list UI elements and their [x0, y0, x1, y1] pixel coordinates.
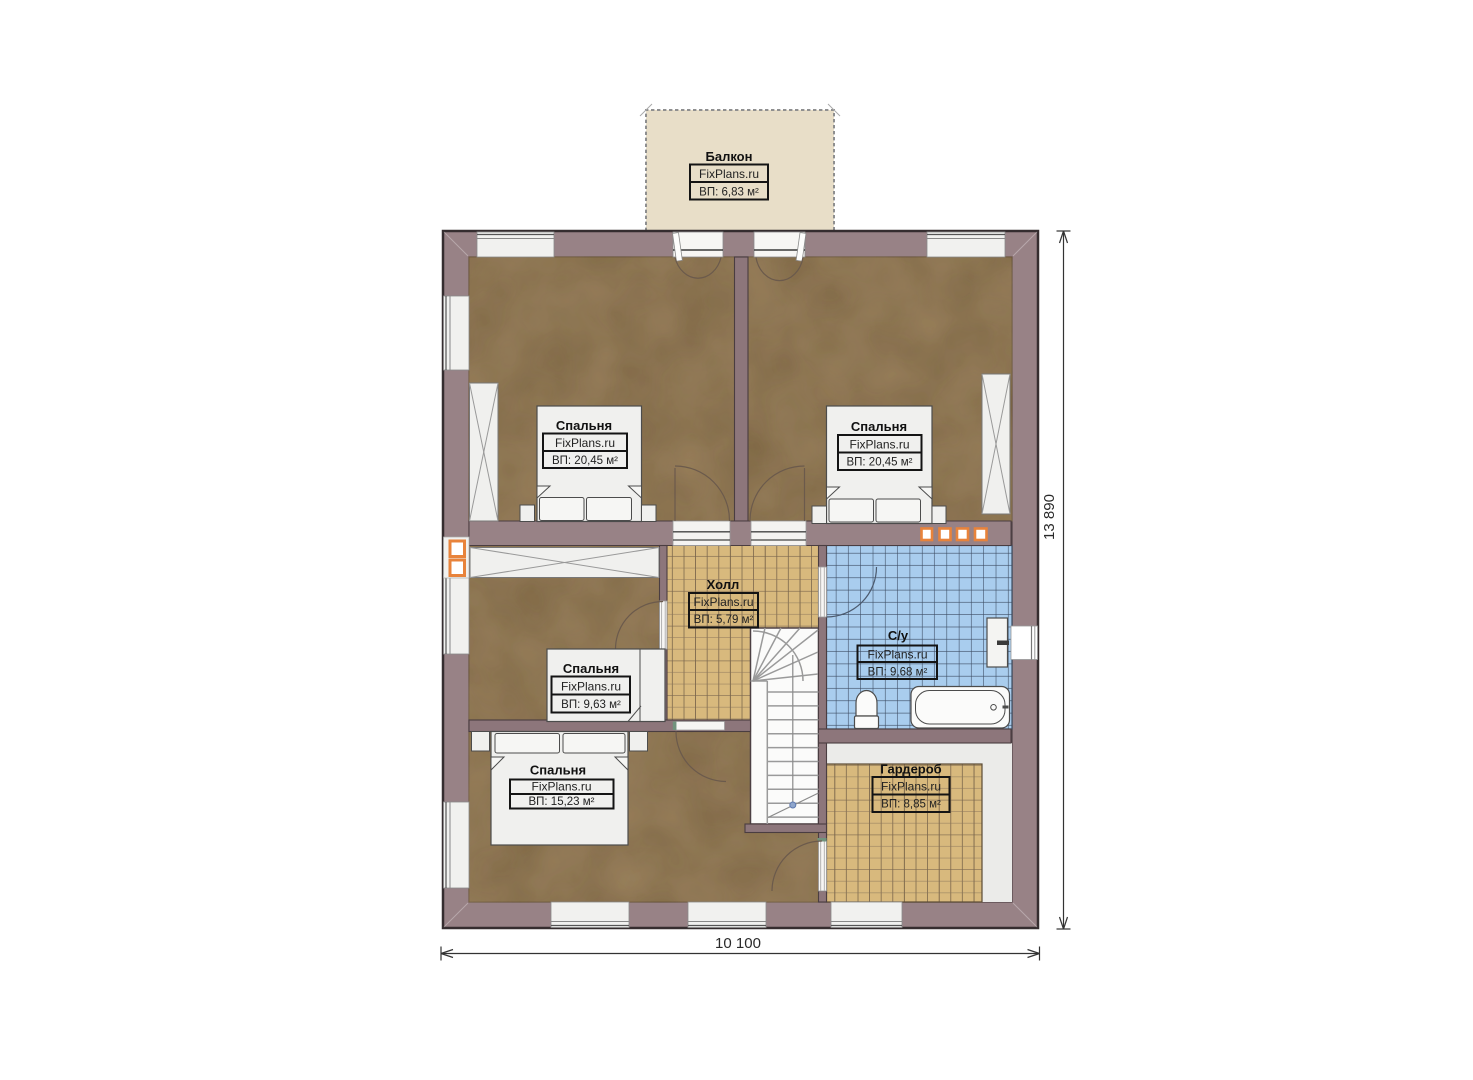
svg-text:FixPlans.ru: FixPlans.ru — [531, 780, 591, 794]
svg-text:Спальня: Спальня — [563, 661, 619, 676]
svg-text:ВП: 15,23 м²: ВП: 15,23 м² — [528, 796, 594, 808]
svg-text:FixPlans.ru: FixPlans.ru — [699, 167, 759, 181]
svg-text:FixPlans.ru: FixPlans.ru — [693, 595, 753, 609]
svg-text:ВП: 6,83 м²: ВП: 6,83 м² — [699, 187, 759, 199]
svg-text:ВП: 9,63 м²: ВП: 9,63 м² — [561, 699, 621, 711]
svg-text:FixPlans.ru: FixPlans.ru — [881, 780, 941, 794]
svg-text:Гардероб: Гардероб — [880, 762, 941, 777]
svg-text:С/у: С/у — [888, 628, 909, 643]
svg-text:ВП: 20,45 м²: ВП: 20,45 м² — [552, 455, 618, 467]
svg-text:Балкон: Балкон — [706, 149, 753, 164]
svg-text:ВП: 8,85 м²: ВП: 8,85 м² — [881, 799, 941, 811]
svg-text:13 890: 13 890 — [1041, 494, 1058, 540]
svg-text:10 100: 10 100 — [715, 935, 761, 952]
svg-text:FixPlans.ru: FixPlans.ru — [867, 648, 927, 662]
svg-text:ВП: 5,79 м²: ВП: 5,79 м² — [694, 614, 754, 626]
svg-text:FixPlans.ru: FixPlans.ru — [555, 436, 615, 450]
svg-text:Спальня: Спальня — [851, 419, 907, 434]
svg-text:FixPlans.ru: FixPlans.ru — [849, 438, 909, 452]
svg-text:Спальня: Спальня — [530, 763, 586, 778]
svg-text:ВП: 20,45 м²: ВП: 20,45 м² — [846, 457, 912, 469]
svg-text:Холл: Холл — [707, 577, 740, 592]
svg-text:ВП: 9,68 м²: ВП: 9,68 м² — [868, 667, 928, 679]
svg-text:Спальня: Спальня — [556, 418, 612, 433]
svg-text:FixPlans.ru: FixPlans.ru — [561, 680, 621, 694]
